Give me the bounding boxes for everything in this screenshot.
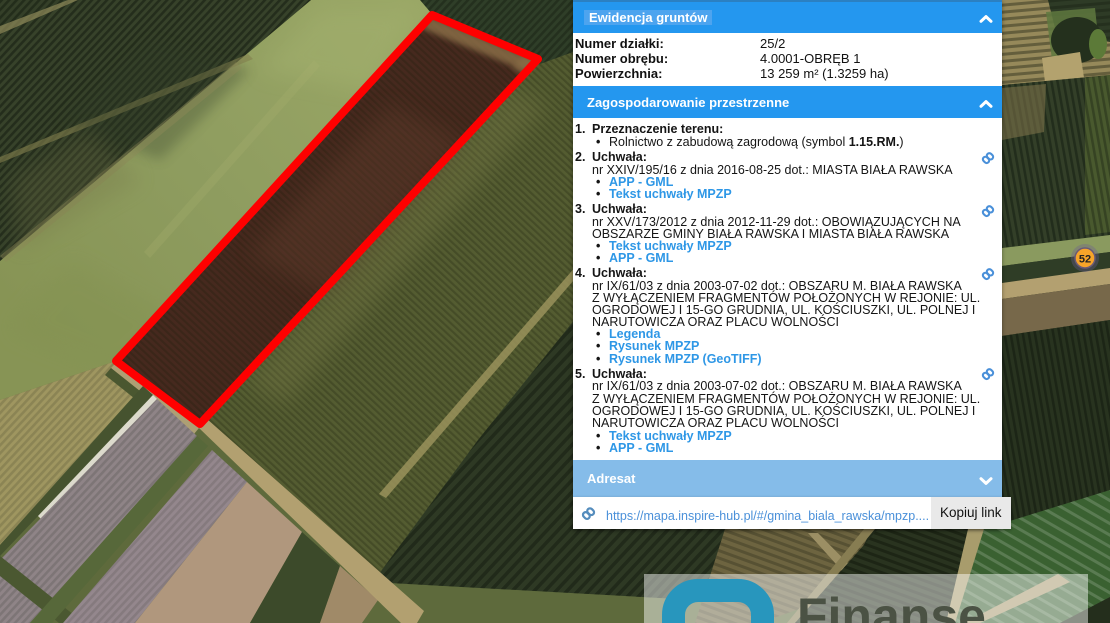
svg-text:52: 52 — [1079, 254, 1091, 266]
